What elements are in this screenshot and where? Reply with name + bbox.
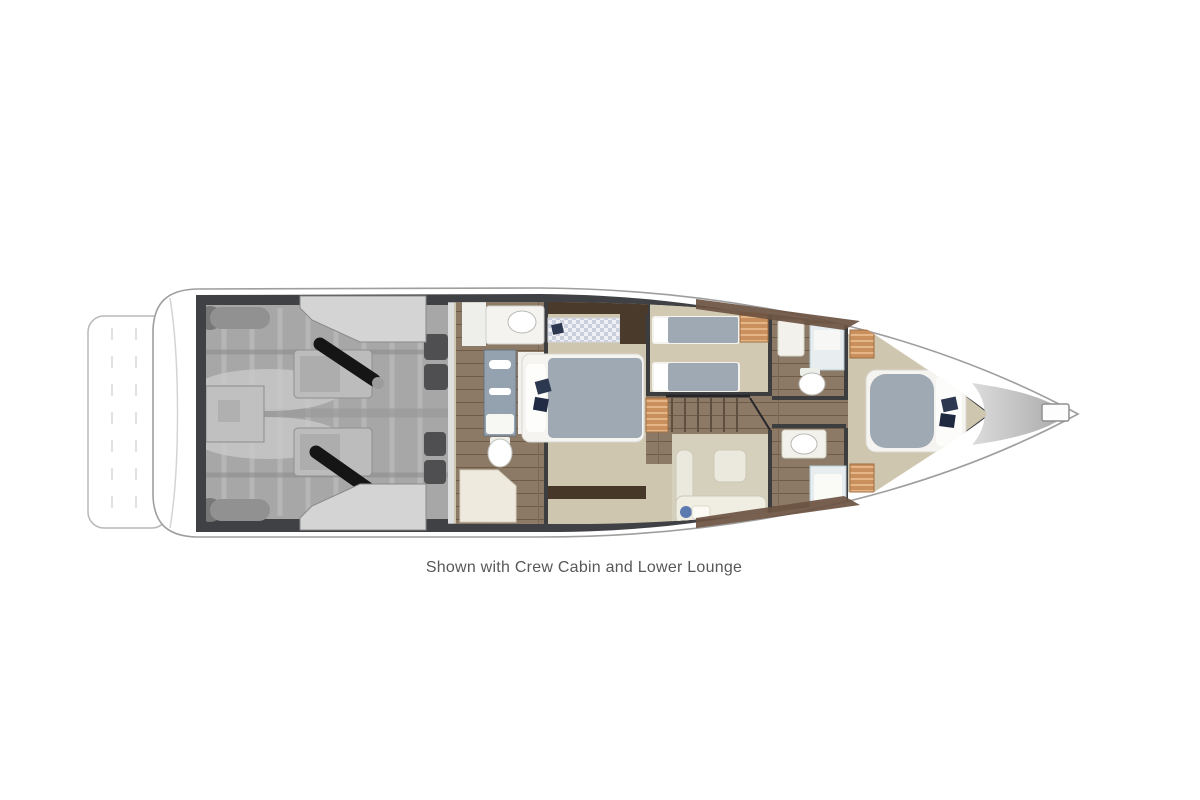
tv-cabinet [548,486,646,499]
engine-room-bulkhead [448,298,454,530]
anchor-hatch [1042,404,1069,421]
exhaust-tip-stbd [372,377,384,389]
blue-pillow [680,506,692,518]
sink-basin [791,434,817,454]
sink-basin [508,311,536,333]
accommodation [454,302,986,528]
generator-top [218,400,240,422]
toilet [488,439,512,467]
twin-bed-duvet [668,363,738,391]
toilet [799,373,825,395]
muffler-stbd [210,307,270,329]
vanity-shelf [462,302,486,346]
towel [489,360,511,369]
twin-pillow [654,364,668,390]
engine-stbd-block [300,356,340,392]
louvered-locker [646,398,668,432]
basin-lower [486,414,514,434]
louvered-locker [850,330,874,358]
muffler-port [210,499,270,521]
floorplan-figure: Shown with Crew Cabin and Lower Lounge [0,0,1200,800]
twin-pillow [654,318,668,342]
shower-bench [814,330,840,350]
twin-bed-duvet [668,317,738,343]
master-bed-duvet [548,358,642,438]
caption: Shown with Crew Cabin and Lower Lounge [0,559,1168,577]
accent-cushion [939,413,956,428]
louvered-locker [850,464,874,492]
yacht-floorplan-svg [0,0,1200,800]
towel [489,388,511,395]
wardrobe [620,314,646,344]
walnut-cabinet [548,302,648,314]
vip-bed-duvet [870,374,934,448]
accent-cushion [533,397,549,412]
vanity-counter [778,320,804,356]
ottoman [714,450,746,482]
